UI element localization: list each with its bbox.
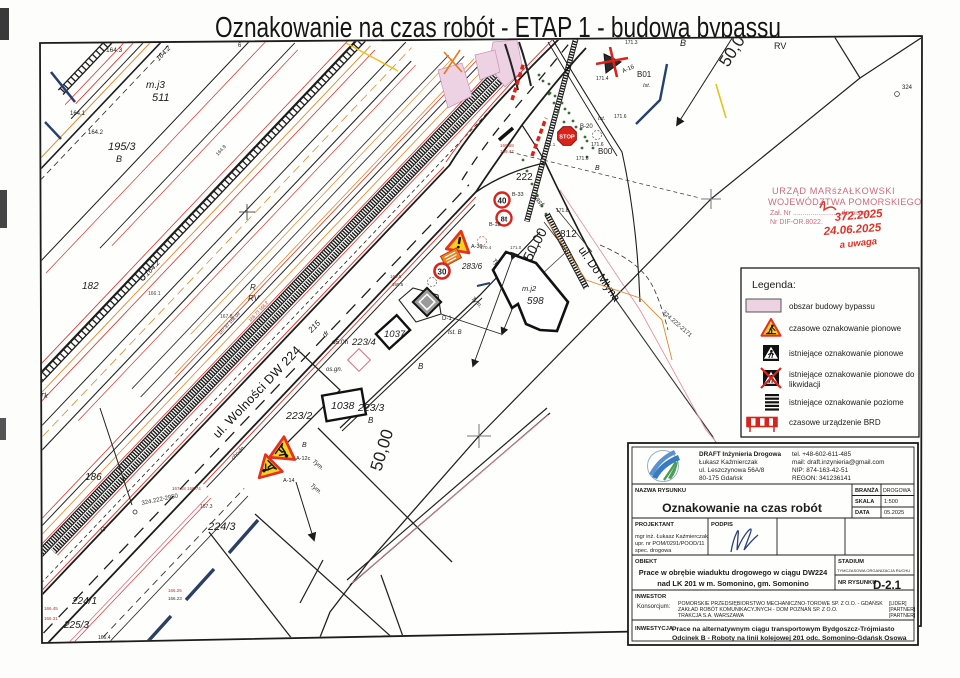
svg-text:B: B <box>418 362 424 371</box>
svg-text:nad LK 201 w m. Somonino, gm.: nad LK 201 w m. Somonino, gm. Somonino <box>657 579 809 588</box>
svg-text:166.4: 166.4 <box>98 635 111 641</box>
svg-text:INWESTYCJA: INWESTYCJA <box>635 626 674 632</box>
svg-text:80-175 Gdańsk: 80-175 Gdańsk <box>699 475 744 482</box>
svg-text:A-14: A-14 <box>283 478 295 484</box>
svg-text:STOP: STOP <box>559 134 575 140</box>
svg-text:171.6: 171.6 <box>576 156 589 162</box>
svg-text:182: 182 <box>82 281 99 292</box>
svg-text:Prace w obrębie wiaduktu drogo: Prace w obrębie wiaduktu drogowego w cią… <box>639 568 828 577</box>
svg-text:ZAKŁAD ROBÓT KOMUNIKACYJNYCH -: ZAKŁAD ROBÓT KOMUNIKACYJNYCH - DOM POZNA… <box>678 606 838 613</box>
svg-text:istniejące oznakowanie poziome: istniejące oznakowanie poziome <box>789 398 904 407</box>
svg-text:RV: RV <box>248 294 260 303</box>
svg-text:B-20: B-20 <box>580 124 593 130</box>
svg-text:NR RYSUNKU: NR RYSUNKU <box>838 580 876 586</box>
svg-text:obszar budowy bypassu: obszar budowy bypassu <box>789 302 875 311</box>
svg-text:169.47: 169.47 <box>500 149 514 154</box>
svg-text:186: 186 <box>85 472 102 483</box>
svg-text:TRAKCJA S.A. WARSZAWA: TRAKCJA S.A. WARSZAWA <box>678 613 745 619</box>
svg-text:istniejące oznakowanie pionowe: istniejące oznakowanie pionowe do <box>789 370 915 379</box>
svg-text:A-12c: A-12c <box>296 456 311 462</box>
svg-text:D-2.1: D-2.1 <box>873 580 902 592</box>
svg-text:PODPIS: PODPIS <box>711 522 733 528</box>
svg-text:czasowe oznakowanie pionowe: czasowe oznakowanie pionowe <box>789 324 902 333</box>
svg-text:166.23: 166.23 <box>168 596 182 601</box>
svg-text:812: 812 <box>560 229 577 240</box>
svg-text:511: 511 <box>152 92 170 104</box>
svg-text:NIP: 874-163-42-51: NIP: 874-163-42-51 <box>792 467 849 474</box>
svg-text:171.4: 171.4 <box>596 76 609 82</box>
svg-text:m.j3: m.j3 <box>146 80 165 91</box>
svg-text:169.5: 169.5 <box>392 282 404 287</box>
svg-text:167.3: 167.3 <box>200 504 213 510</box>
svg-text:STADIUM: STADIUM <box>838 559 864 565</box>
svg-text:Nr DIF-OR.8022.: Nr DIF-OR.8022. <box>770 219 823 226</box>
svg-text:POMORSKIE PRZEDSIĘBIORSTWO MEC: POMORSKIE PRZEDSIĘBIORSTWO MECHANICZNO-T… <box>678 600 883 607</box>
svg-text:DRAFT Inżynieria Drogowa: DRAFT Inżynieria Drogowa <box>699 451 781 458</box>
svg-text:171.3: 171.3 <box>625 40 638 46</box>
svg-text:[PARTNER]: [PARTNER] <box>889 613 916 619</box>
svg-text:WOJEWÓDZTWA POMORSKIEGO: WOJEWÓDZTWA POMORSKIEGO <box>768 197 922 207</box>
svg-text:324: 324 <box>902 85 913 91</box>
svg-text:Ist. B: Ist. B <box>448 330 462 336</box>
svg-text:os.gn.: os.gn. <box>326 367 342 373</box>
svg-text:Łukasz Kaźmierczak: Łukasz Kaźmierczak <box>699 459 758 466</box>
svg-text:upr. nr POM/0291/POOD/11: upr. nr POM/0291/POOD/11 <box>635 541 705 547</box>
svg-text:166.25: 166.25 <box>168 588 182 593</box>
svg-text:166.31: 166.31 <box>44 616 58 621</box>
svg-text:mail: draft.inzynieria@gmail.c: mail: draft.inzynieria@gmail.com <box>792 459 884 466</box>
svg-text:ul. Leszczynowa 56A/8: ul. Leszczynowa 56A/8 <box>699 467 765 474</box>
svg-text:224/1: 224/1 <box>71 596 97 607</box>
svg-text:m.j2: m.j2 <box>522 284 537 293</box>
svg-text:Prace na alternatywnym ciągu t: Prace na alternatywnym ciągu transportow… <box>672 626 894 633</box>
svg-text:B: B <box>680 38 686 48</box>
svg-text:PROJEKTANT: PROJEKTANT <box>635 522 674 528</box>
svg-text:164.3: 164.3 <box>106 47 123 54</box>
svg-text:SKALA: SKALA <box>855 499 874 505</box>
svg-text:B: B <box>302 442 307 449</box>
svg-text:222: 222 <box>516 172 533 183</box>
svg-text:1:500: 1:500 <box>884 499 898 505</box>
svg-text:URZĄD MARśźAŁKOWSKI: URZĄD MARśźAŁKOWSKI <box>772 186 895 196</box>
svg-text:Ist.: Ist. <box>598 116 605 122</box>
svg-text:166.1: 166.1 <box>148 291 161 297</box>
svg-text:164.2: 164.2 <box>88 130 104 136</box>
svg-text:223/2: 223/2 <box>285 410 312 422</box>
svg-text:B01: B01 <box>637 70 652 79</box>
svg-text:223/3: 223/3 <box>357 402 384 414</box>
svg-text:225/3: 225/3 <box>63 620 89 631</box>
svg-text:B-18: B-18 <box>489 222 501 228</box>
svg-text:Legenda:: Legenda: <box>752 279 796 291</box>
svg-text:B: B <box>116 154 122 164</box>
svg-text:NAZWA RYSUNKU: NAZWA RYSUNKU <box>635 488 686 494</box>
svg-text:B: B <box>595 165 600 172</box>
svg-text:tel. +48-602-611-485: tel. +48-602-611-485 <box>792 451 851 458</box>
svg-text:164.1: 164.1 <box>70 111 86 117</box>
svg-text:TYMCZASOWA ORGANIZACJA RUCHU: TYMCZASOWA ORGANIZACJA RUCHU <box>837 568 910 573</box>
svg-text:o5.0h: o5.0h <box>332 339 349 346</box>
svg-text:30: 30 <box>438 268 447 277</box>
svg-text:Oznakowanie na czas robót: Oznakowanie na czas robót <box>662 501 822 515</box>
svg-text:REGON: 341236141: REGON: 341236141 <box>792 475 851 482</box>
svg-text:166.45: 166.45 <box>44 606 58 611</box>
svg-text:195/3: 195/3 <box>108 141 136 153</box>
svg-text:171.0: 171.0 <box>510 245 522 250</box>
svg-text:istniejące oznakowanie pionowe: istniejące oznakowanie pionowe <box>789 349 904 358</box>
svg-text:B00: B00 <box>598 147 613 156</box>
svg-text:Ist.: Ist. <box>643 83 650 89</box>
svg-text:170.4: 170.4 <box>480 245 492 250</box>
svg-text:169.5: 169.5 <box>390 274 402 279</box>
svg-text:DROGOWA: DROGOWA <box>883 488 911 494</box>
svg-text:1037: 1037 <box>384 329 406 340</box>
svg-text:B-33: B-33 <box>512 192 524 198</box>
svg-text:czasowe urządzenie BRD: czasowe urządzenie BRD <box>789 418 881 427</box>
svg-text:169.58: 169.58 <box>500 143 514 148</box>
svg-text:INWESTOR: INWESTOR <box>635 594 667 600</box>
svg-text:OBIEKT: OBIEKT <box>635 559 657 565</box>
svg-text:DATA: DATA <box>855 510 870 516</box>
svg-text:283/6: 283/6 <box>461 262 483 271</box>
svg-text:171.8: 171.8 <box>556 208 569 214</box>
svg-text:224/3: 224/3 <box>207 521 236 533</box>
svg-text:167.18 166.74: 167.18 166.74 <box>172 486 201 491</box>
svg-text:8t: 8t <box>501 214 508 223</box>
svg-text:223/4: 223/4 <box>351 337 376 348</box>
svg-text:40: 40 <box>498 196 507 205</box>
svg-text:05.2025: 05.2025 <box>884 510 904 516</box>
svg-text:likwidacji: likwidacji <box>789 380 821 389</box>
svg-text:598: 598 <box>527 296 544 307</box>
svg-text:R: R <box>250 283 256 292</box>
svg-text:1038: 1038 <box>331 400 355 412</box>
svg-text:mgr inż. Łukasz Kaźmierczak: mgr inż. Łukasz Kaźmierczak <box>635 534 708 540</box>
svg-text:D-1: D-1 <box>442 316 452 322</box>
svg-text:Odcinek B - Roboty na linii ko: Odcinek B - Roboty na linii kolejowej 20… <box>672 635 907 642</box>
svg-text:171.6: 171.6 <box>614 114 627 120</box>
svg-text:spec. drogowa: spec. drogowa <box>635 548 672 554</box>
svg-text:RV: RV <box>774 41 786 51</box>
svg-text:Konsorcjum:: Konsorcjum: <box>637 604 671 610</box>
svg-text:B: B <box>368 416 374 425</box>
svg-text:167.8: 167.8 <box>220 314 233 320</box>
svg-text:BRANŻA: BRANŻA <box>855 487 879 494</box>
